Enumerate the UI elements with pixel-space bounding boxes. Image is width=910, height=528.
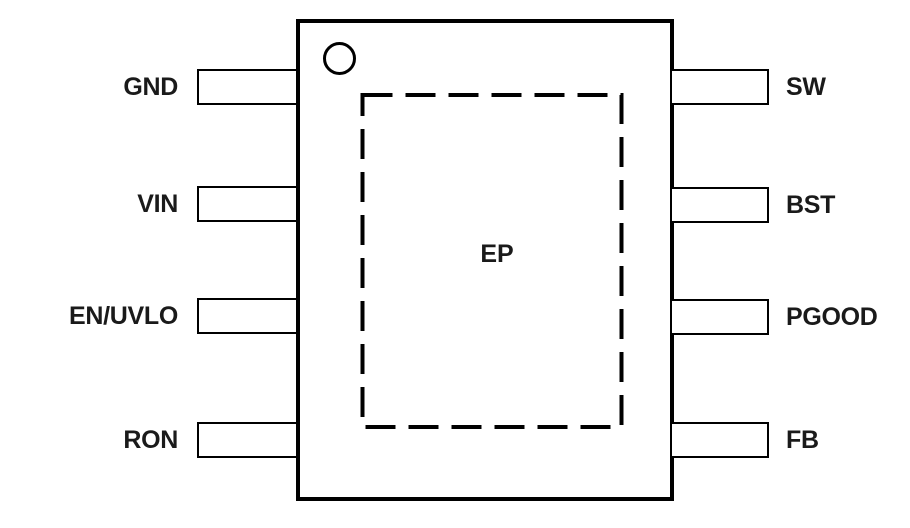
pin-box-gnd [197,69,298,105]
pin-label-sw: SW [786,69,910,105]
pinout-diagram: EP GND VIN EN/UVLO RON SW BST PGOOD FB [0,0,910,528]
pin1-indicator-icon [323,42,356,75]
pin-label-ron: RON [30,422,178,458]
pin-box-enuvlo [197,298,298,334]
pin-label-enuvlo: EN/UVLO [30,298,178,334]
pin-box-pgood [670,299,769,335]
pin-box-fb [670,422,769,458]
pin-box-vin [197,186,298,222]
pin-box-bst [670,187,769,223]
pin-label-fb: FB [786,422,910,458]
exposed-pad-label: EP [442,236,552,272]
pin-label-vin: VIN [30,186,178,222]
pin-box-ron [197,422,298,458]
pin-box-sw [670,69,769,105]
pin-label-bst: BST [786,187,910,223]
pin-label-gnd: GND [30,69,178,105]
pin-label-pgood: PGOOD [786,299,910,335]
